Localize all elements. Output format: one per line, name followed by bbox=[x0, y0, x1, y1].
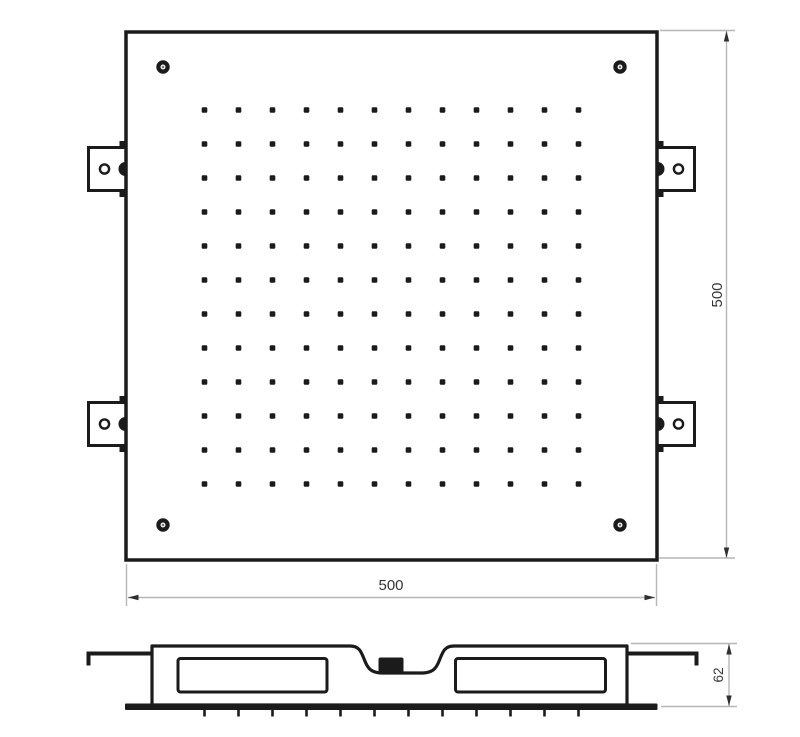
nozzle-dot bbox=[474, 209, 480, 215]
nozzle-dot bbox=[508, 209, 514, 215]
height-dimension: 500 bbox=[659, 31, 735, 559]
nozzle-dot bbox=[202, 243, 208, 249]
nozzle-dot bbox=[338, 345, 344, 351]
nozzle-dot bbox=[542, 379, 548, 385]
nozzle-dot bbox=[270, 447, 276, 453]
nozzle-dot bbox=[474, 481, 480, 487]
nozzle-dot bbox=[576, 277, 582, 283]
nozzle-dot bbox=[372, 447, 378, 453]
nozzle-dot bbox=[202, 345, 208, 351]
width-dimension-label: 500 bbox=[378, 577, 403, 594]
nozzle-dot bbox=[474, 379, 480, 385]
nozzle-dot bbox=[576, 175, 582, 181]
nozzle-dot bbox=[202, 277, 208, 283]
nozzle-dot bbox=[508, 311, 514, 317]
nozzle-dot bbox=[372, 209, 378, 215]
nozzle-dot bbox=[202, 379, 208, 385]
nozzle-dot bbox=[304, 277, 310, 283]
corner-screw-bottom-left bbox=[156, 518, 169, 531]
nozzle-dot bbox=[304, 379, 310, 385]
nozzle-dot bbox=[304, 141, 310, 147]
nozzle-dot bbox=[508, 345, 514, 351]
nozzle-dot bbox=[576, 481, 582, 487]
spray-flange bbox=[125, 704, 658, 711]
depth-dimension-label: 62 bbox=[711, 667, 726, 682]
nozzle-dot bbox=[576, 243, 582, 249]
nozzle-dot bbox=[202, 209, 208, 215]
nozzle-dot bbox=[508, 481, 514, 487]
nozzle-dot bbox=[236, 481, 242, 487]
nozzle-dot bbox=[508, 141, 514, 147]
mounting-hook-left bbox=[89, 654, 153, 664]
nozzle-dot bbox=[270, 175, 276, 181]
nozzle-dot bbox=[372, 413, 378, 419]
nozzle-dot bbox=[508, 107, 514, 113]
nozzle-dot bbox=[576, 311, 582, 317]
nozzle-dot bbox=[236, 379, 242, 385]
nozzle-dot bbox=[474, 311, 480, 317]
nozzle-dot bbox=[542, 243, 548, 249]
nozzle-dot bbox=[542, 345, 548, 351]
nozzle-dot bbox=[270, 107, 276, 113]
nozzle-dot bbox=[542, 107, 548, 113]
arrowhead bbox=[724, 31, 729, 42]
nozzle-dot bbox=[338, 175, 344, 181]
nozzle-dot bbox=[338, 447, 344, 453]
nozzle-dot bbox=[338, 413, 344, 419]
nozzle-dot bbox=[236, 243, 242, 249]
nozzle-dot bbox=[406, 447, 412, 453]
nozzle-dot bbox=[542, 447, 548, 453]
nozzle-dot bbox=[270, 209, 276, 215]
nozzle-dot bbox=[202, 141, 208, 147]
internal-slot-left bbox=[178, 659, 327, 693]
nozzle-dot bbox=[372, 311, 378, 317]
nozzle-dot bbox=[440, 243, 446, 249]
nozzle-dot bbox=[406, 209, 412, 215]
nozzle-dot bbox=[474, 447, 480, 453]
nozzle-dot bbox=[338, 311, 344, 317]
nozzle-dot bbox=[270, 277, 276, 283]
nozzle-dot bbox=[270, 243, 276, 249]
nozzle-dot bbox=[576, 107, 582, 113]
nozzle-dot bbox=[406, 481, 412, 487]
side-view: 62 bbox=[89, 644, 738, 717]
nozzle-dot bbox=[542, 413, 548, 419]
nozzle-dot bbox=[474, 277, 480, 283]
nozzle-dot bbox=[270, 413, 276, 419]
nozzle-dot bbox=[236, 277, 242, 283]
nozzle-dot bbox=[474, 175, 480, 181]
nozzle-dot bbox=[202, 107, 208, 113]
nozzle-dot bbox=[508, 379, 514, 385]
water-inlet bbox=[379, 658, 404, 674]
nozzle-dot bbox=[508, 243, 514, 249]
nozzle-dot bbox=[270, 379, 276, 385]
nozzle-dot bbox=[474, 413, 480, 419]
nozzle-dot bbox=[406, 141, 412, 147]
nozzle-dot bbox=[304, 243, 310, 249]
corner-screw-top-left bbox=[156, 60, 169, 73]
corner-screw-top-right bbox=[613, 60, 626, 73]
nozzle-dot bbox=[508, 447, 514, 453]
nozzle-dot bbox=[202, 175, 208, 181]
nozzle-dot bbox=[270, 481, 276, 487]
nozzle-dot bbox=[236, 447, 242, 453]
nozzle-dot bbox=[576, 209, 582, 215]
nozzle-dot bbox=[372, 107, 378, 113]
nozzle-dot bbox=[440, 379, 446, 385]
nozzle-dot bbox=[236, 345, 242, 351]
drawing-canvas: 500 500 bbox=[0, 0, 800, 737]
nozzle-dot bbox=[406, 311, 412, 317]
nozzle-dot bbox=[474, 141, 480, 147]
arrowhead bbox=[724, 548, 729, 559]
corner-screw-bottom-right bbox=[613, 518, 626, 531]
nozzle-dot bbox=[338, 481, 344, 487]
width-dimension: 500 bbox=[127, 564, 657, 606]
nozzle-dot bbox=[406, 243, 412, 249]
nozzle-dot bbox=[542, 175, 548, 181]
nozzle-dot bbox=[372, 243, 378, 249]
nozzle-dot bbox=[236, 413, 242, 419]
nozzle-dot bbox=[406, 107, 412, 113]
nozzle-dot bbox=[304, 447, 310, 453]
nozzle-dot bbox=[440, 175, 446, 181]
top-view: 500 500 bbox=[89, 31, 736, 607]
nozzle-dot bbox=[440, 107, 446, 113]
nozzle-dot bbox=[440, 413, 446, 419]
arrowhead bbox=[726, 696, 731, 707]
nozzle-dot bbox=[406, 379, 412, 385]
nozzle-dot bbox=[202, 447, 208, 453]
nozzle-dot bbox=[202, 311, 208, 317]
nozzle-dot bbox=[406, 413, 412, 419]
nozzle-dot bbox=[304, 175, 310, 181]
nozzle-dot bbox=[542, 209, 548, 215]
nozzle-dot bbox=[474, 107, 480, 113]
technical-drawing: 500 500 bbox=[0, 0, 800, 737]
nozzle-dot bbox=[406, 277, 412, 283]
nozzle-dot bbox=[440, 209, 446, 215]
nozzle-dot bbox=[440, 311, 446, 317]
nozzle-dot bbox=[304, 481, 310, 487]
nozzle-dot bbox=[304, 345, 310, 351]
nozzle-dot bbox=[576, 379, 582, 385]
nozzle-dot bbox=[338, 379, 344, 385]
nozzle-dot bbox=[236, 107, 242, 113]
arrowhead bbox=[128, 595, 139, 600]
nozzle-dot bbox=[372, 481, 378, 487]
nozzle-dot bbox=[440, 345, 446, 351]
nozzle-dot bbox=[542, 481, 548, 487]
arrowhead bbox=[645, 595, 656, 600]
nozzle-dot bbox=[236, 175, 242, 181]
height-dimension-label: 500 bbox=[709, 282, 726, 307]
nozzle-dot bbox=[270, 141, 276, 147]
nozzle-dot bbox=[576, 141, 582, 147]
nozzle-dot bbox=[542, 277, 548, 283]
nozzle-dot bbox=[236, 209, 242, 215]
nozzle-dot bbox=[440, 481, 446, 487]
nozzle-dot bbox=[406, 175, 412, 181]
nozzle-dot bbox=[372, 141, 378, 147]
nozzle-dot bbox=[542, 141, 548, 147]
nozzle-dot bbox=[236, 141, 242, 147]
nozzle-dot bbox=[508, 413, 514, 419]
nozzle-dot bbox=[372, 175, 378, 181]
arrowhead bbox=[726, 644, 731, 655]
nozzle-dot bbox=[304, 107, 310, 113]
nozzle-dot bbox=[542, 311, 548, 317]
nozzle-dot bbox=[576, 413, 582, 419]
nozzle-dot bbox=[372, 345, 378, 351]
nozzle-dot bbox=[406, 345, 412, 351]
nozzle-dot bbox=[338, 209, 344, 215]
nozzle-dot bbox=[304, 209, 310, 215]
nozzle-dot bbox=[202, 481, 208, 487]
nozzle-dot bbox=[474, 345, 480, 351]
nozzle-dot bbox=[474, 243, 480, 249]
nozzle-dot bbox=[508, 277, 514, 283]
nozzle-dot bbox=[338, 277, 344, 283]
internal-slot-right bbox=[456, 659, 606, 693]
nozzle-dot bbox=[508, 175, 514, 181]
nozzle-dot bbox=[338, 243, 344, 249]
nozzle-dot bbox=[270, 345, 276, 351]
nozzle-dot bbox=[440, 447, 446, 453]
nozzle-dot bbox=[440, 277, 446, 283]
nozzle-dot bbox=[576, 447, 582, 453]
nozzle-dot bbox=[576, 345, 582, 351]
nozzle-dot bbox=[372, 379, 378, 385]
nozzle-dot bbox=[236, 311, 242, 317]
nozzle-ticks bbox=[205, 710, 579, 717]
nozzle-dot bbox=[304, 413, 310, 419]
nozzle-dot bbox=[304, 311, 310, 317]
nozzle-dot bbox=[440, 141, 446, 147]
nozzle-dot bbox=[202, 413, 208, 419]
nozzle-dot bbox=[338, 141, 344, 147]
mounting-hook-right bbox=[627, 654, 697, 664]
nozzle-dot bbox=[338, 107, 344, 113]
nozzle-dot bbox=[270, 311, 276, 317]
nozzle-dot bbox=[372, 277, 378, 283]
